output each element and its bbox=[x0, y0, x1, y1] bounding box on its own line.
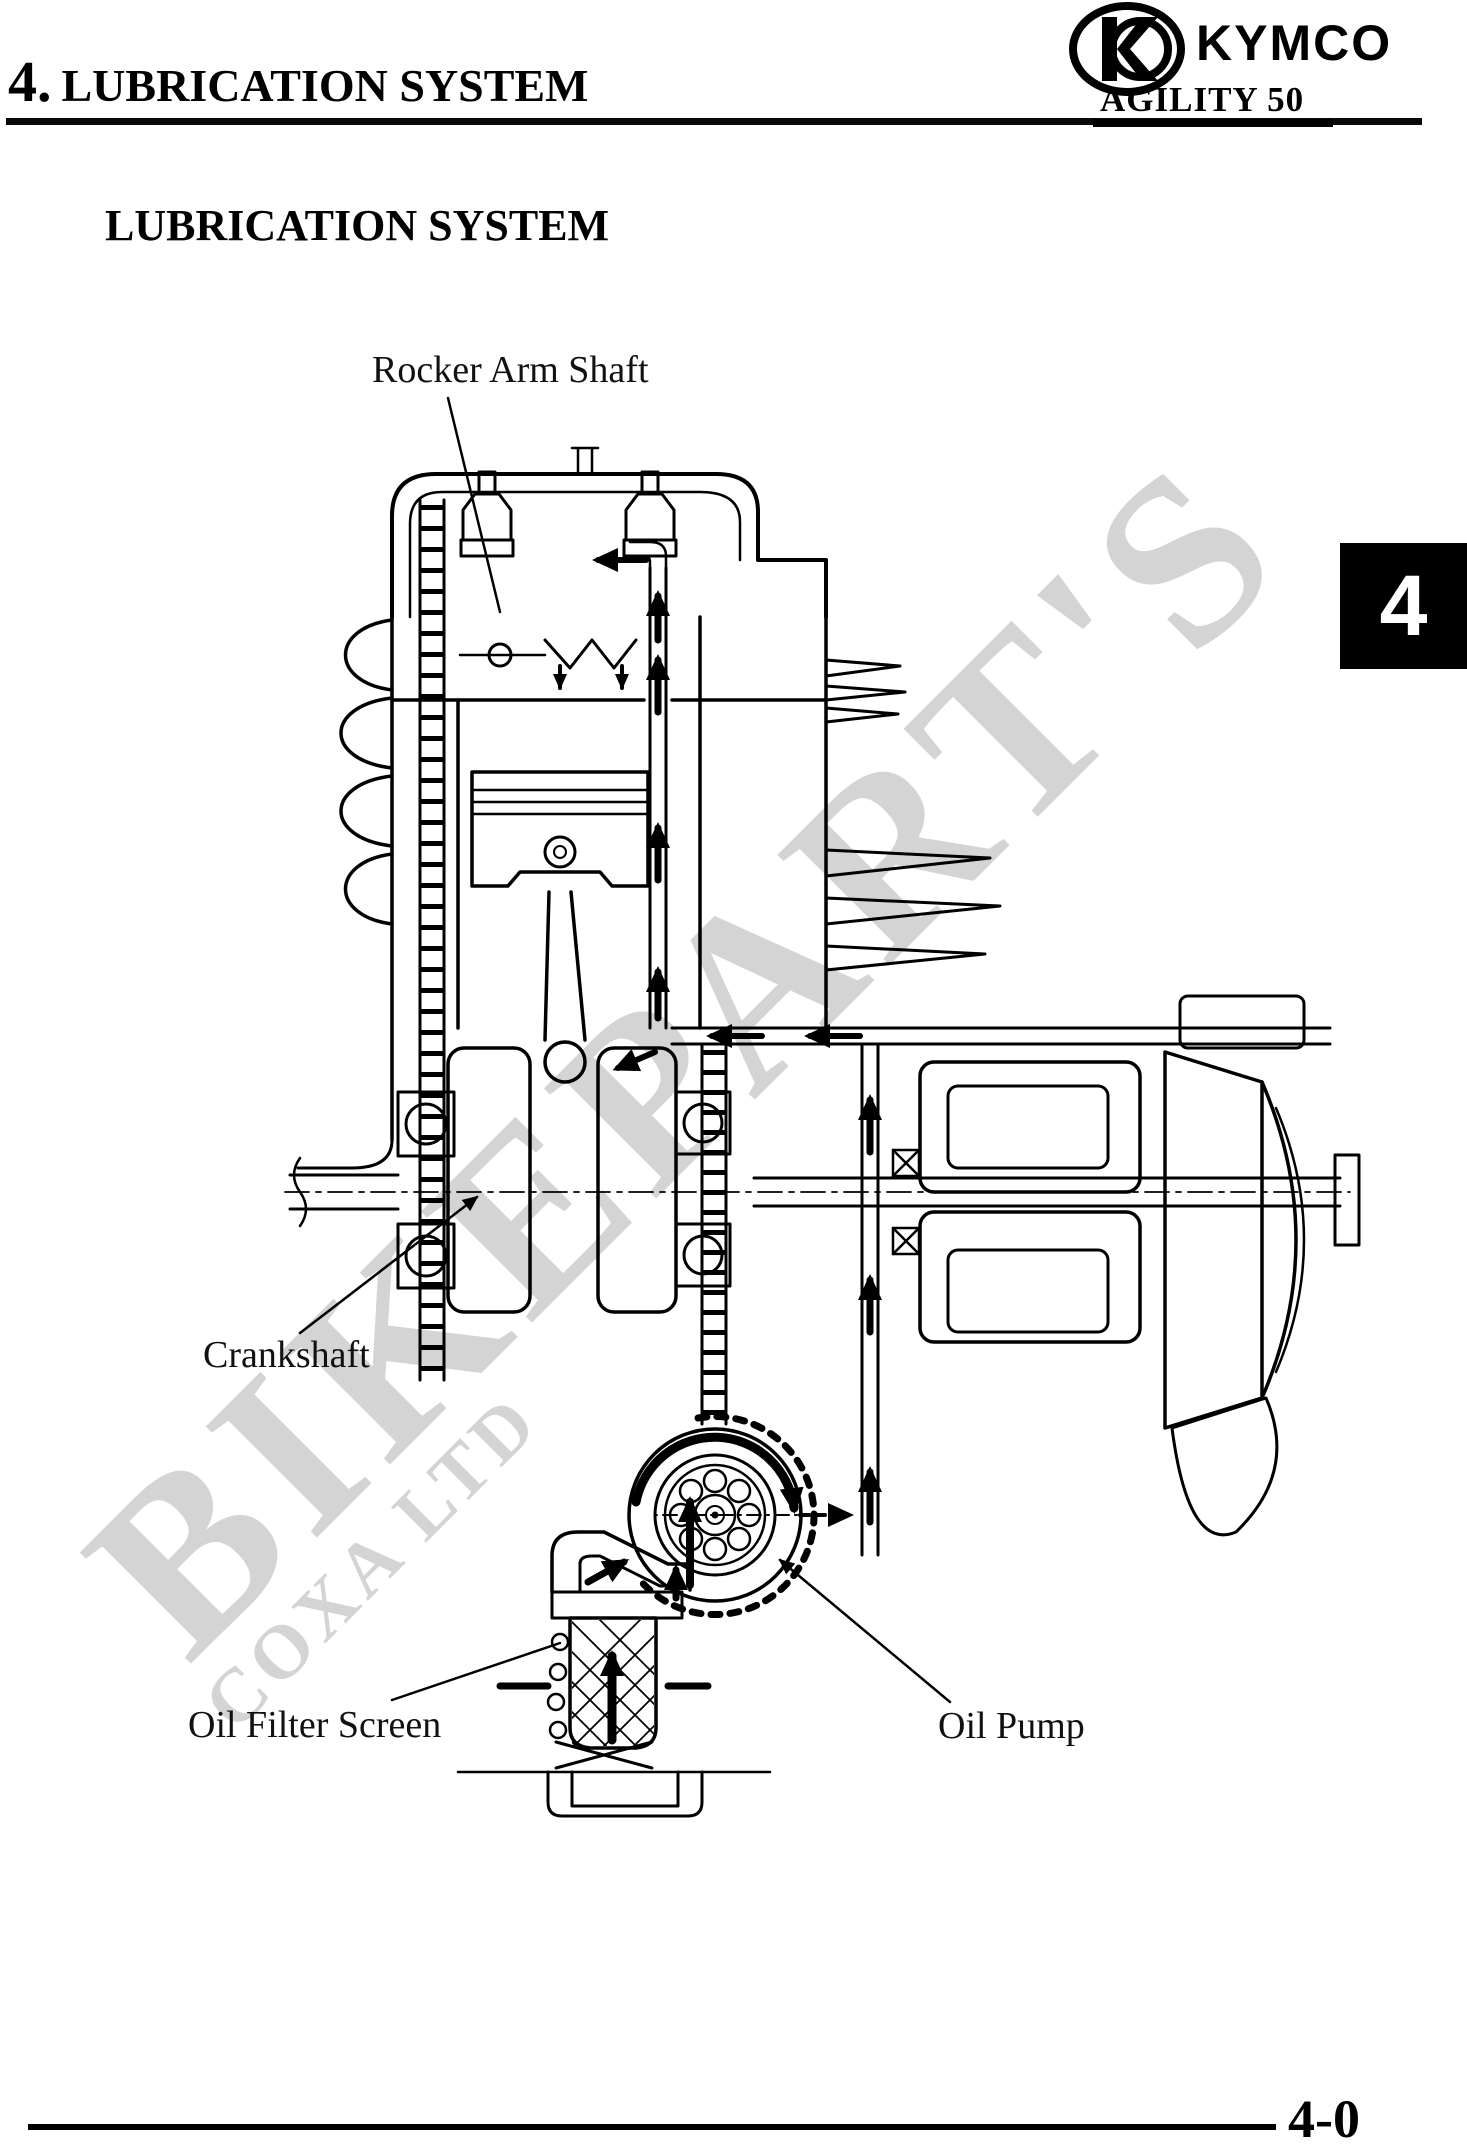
leader-oil-pump bbox=[780, 1560, 950, 1702]
chapter-side-tab-number: 4 bbox=[1380, 563, 1428, 649]
model-name: AGILITY 50 bbox=[1100, 80, 1304, 120]
chapter-heading: 4.LUBRICATION SYSTEM bbox=[8, 48, 588, 115]
footer-rule bbox=[28, 2124, 1276, 2130]
label-oil-pump: Oil Pump bbox=[938, 1704, 1085, 1748]
leader-crankshaft bbox=[300, 1197, 477, 1333]
section-title: LUBRICATION SYSTEM bbox=[105, 200, 609, 251]
chapter-side-tab: 4 bbox=[1340, 543, 1467, 669]
leader-oil-filter-screen bbox=[392, 1643, 560, 1700]
label-oil-filter-screen: Oil Filter Screen bbox=[188, 1703, 441, 1747]
brand-name: KYMCO bbox=[1196, 14, 1392, 72]
label-crankshaft: Crankshaft bbox=[203, 1333, 370, 1377]
chapter-title: LUBRICATION SYSTEM bbox=[62, 60, 589, 111]
engine-cutaway-diagram bbox=[0, 0, 1467, 2147]
label-rocker-arm-shaft: Rocker Arm Shaft bbox=[372, 348, 649, 392]
leader-rocker-arm-shaft bbox=[448, 398, 500, 612]
chapter-number: 4. bbox=[8, 49, 52, 114]
page-number: 4-0 bbox=[1288, 2088, 1360, 2147]
manual-page: BIKEPART'S COXA LTD 4.LUBRICATION SYSTEM… bbox=[0, 0, 1467, 2147]
